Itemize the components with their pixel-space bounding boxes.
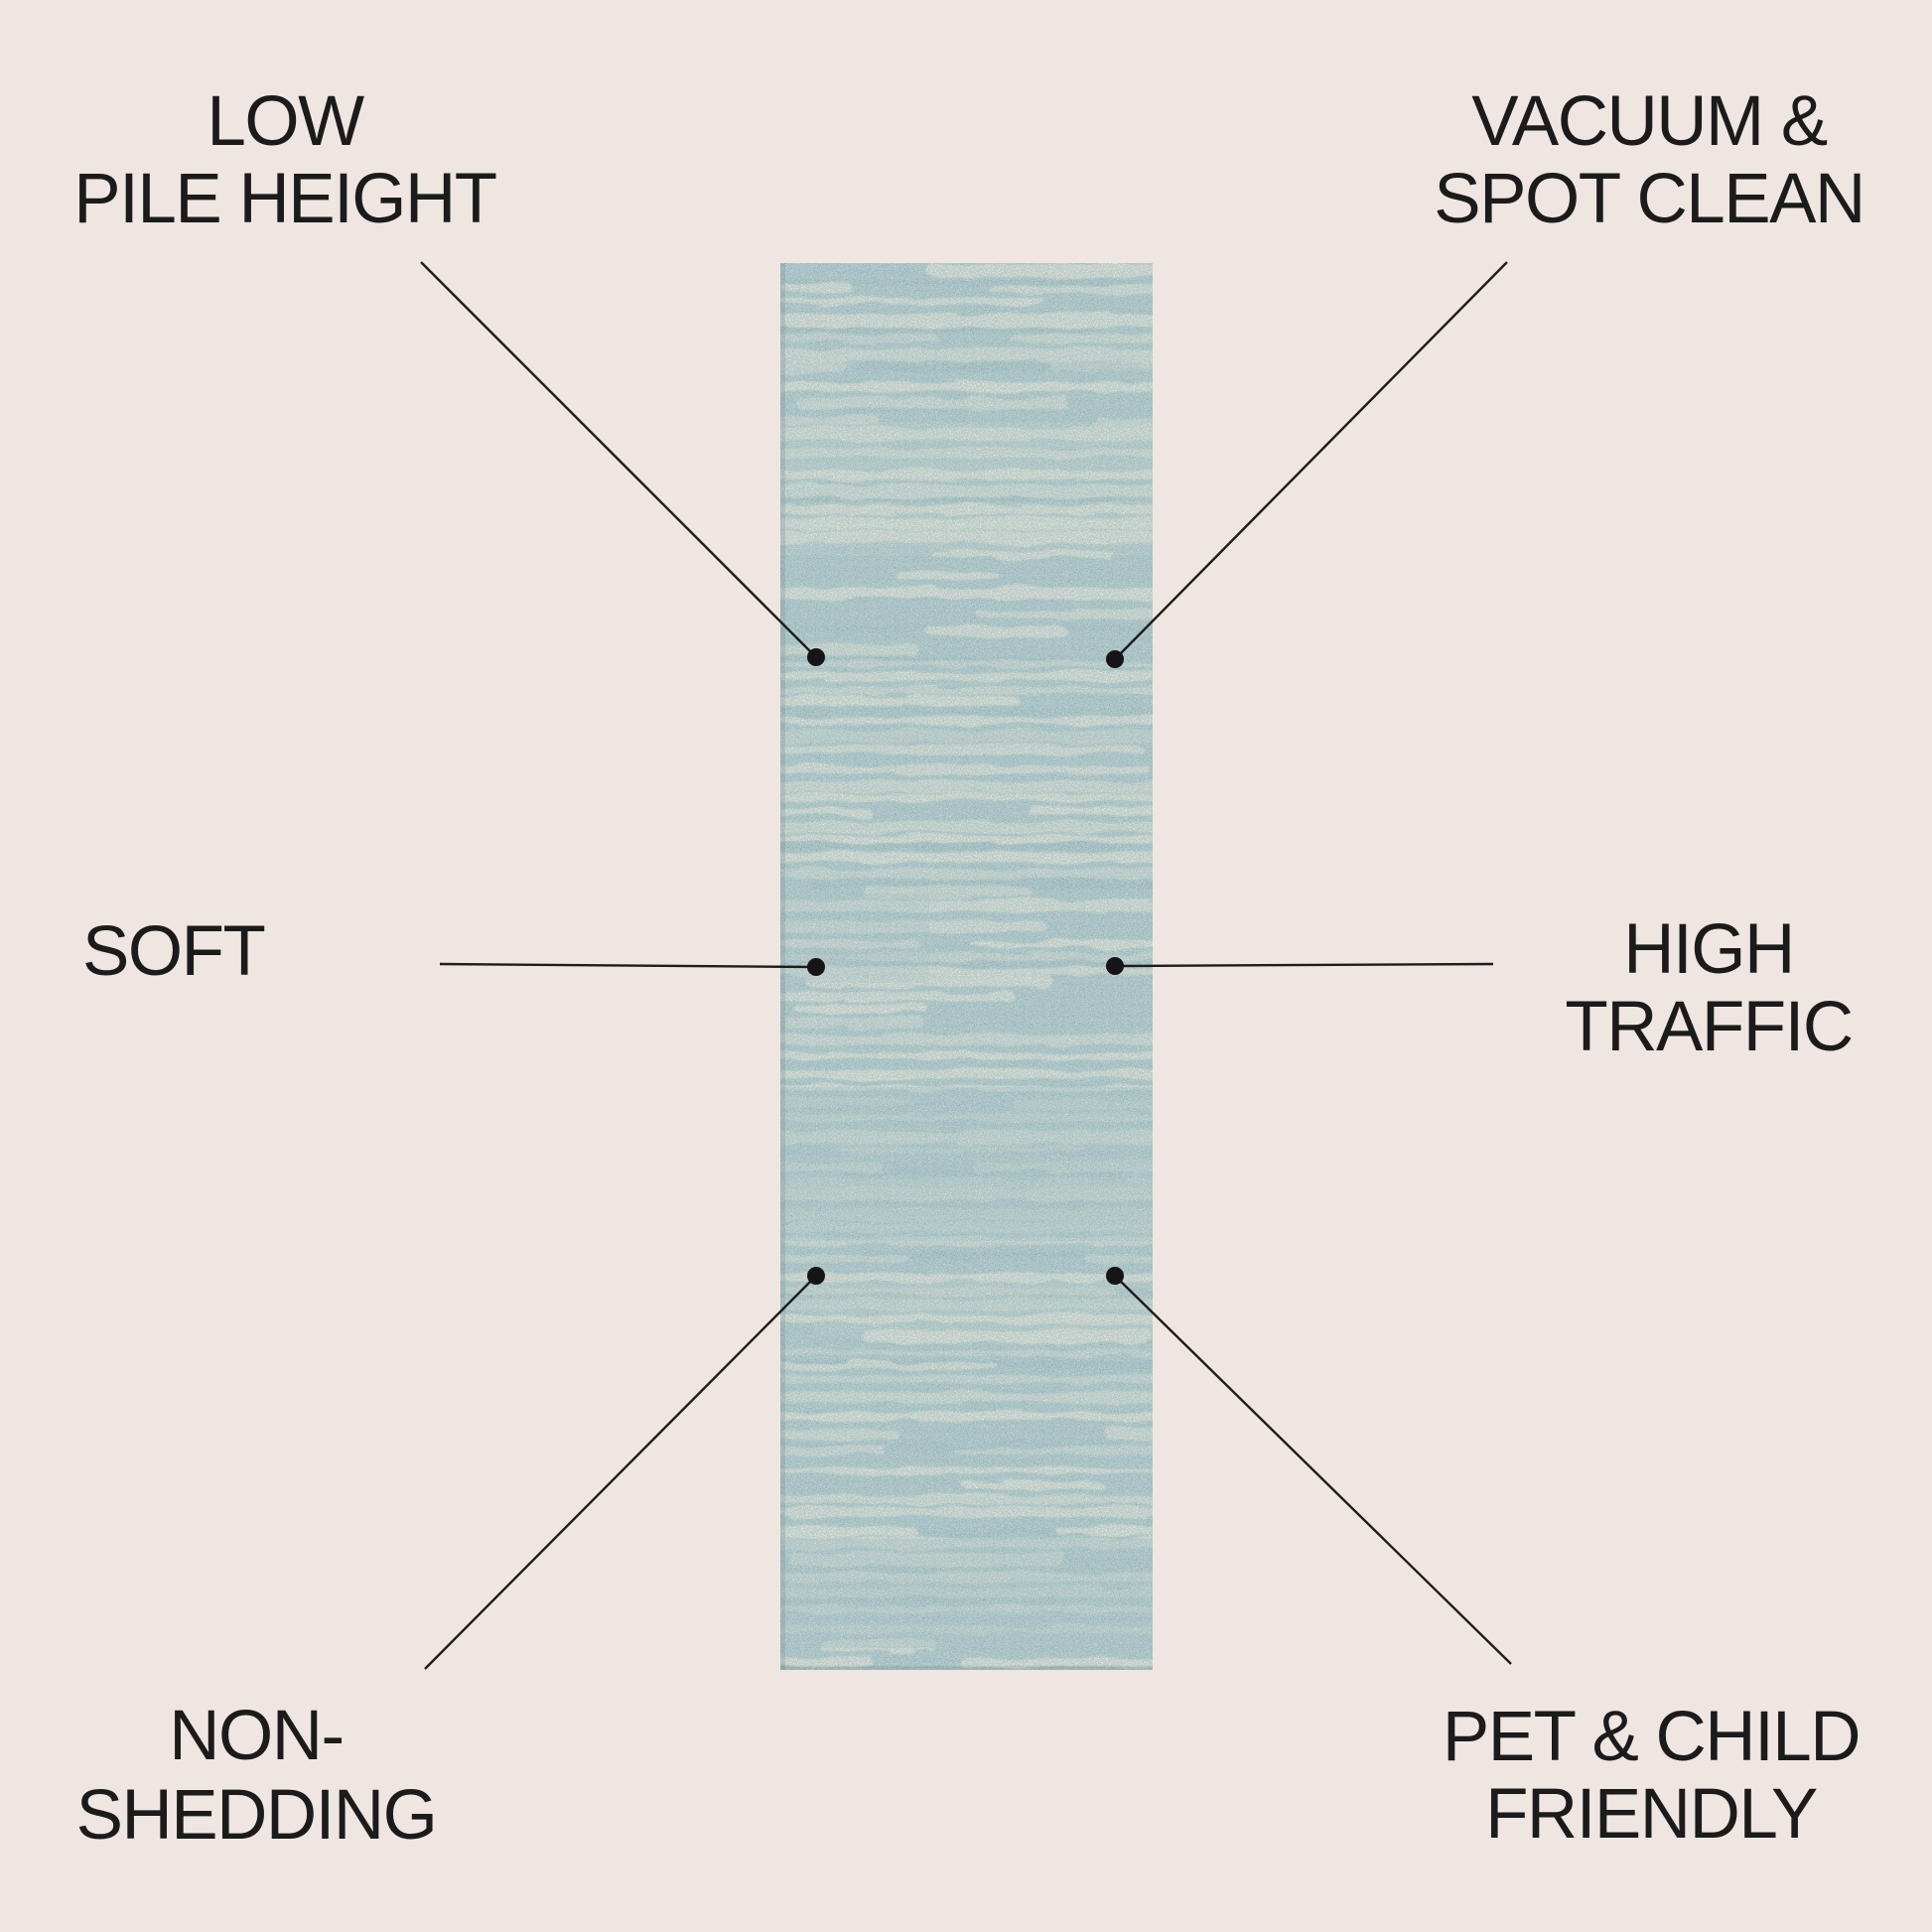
svg-text:PILE HEIGHT: PILE HEIGHT <box>73 160 496 238</box>
svg-text:PET & CHILD: PET & CHILD <box>1443 1698 1860 1776</box>
svg-text:VACUUM &: VACUUM & <box>1471 82 1828 161</box>
svg-text:SOFT: SOFT <box>82 912 264 991</box>
svg-text:LOW: LOW <box>207 82 364 161</box>
svg-text:SPOT CLEAN: SPOT CLEAN <box>1434 160 1864 238</box>
svg-text:NON-: NON- <box>169 1697 343 1775</box>
svg-text:TRAFFIC: TRAFFIC <box>1565 988 1852 1066</box>
svg-text:HIGH: HIGH <box>1623 910 1794 989</box>
svg-text:FRIENDLY: FRIENDLY <box>1485 1775 1817 1854</box>
svg-text:SHEDDING: SHEDDING <box>76 1776 437 1855</box>
